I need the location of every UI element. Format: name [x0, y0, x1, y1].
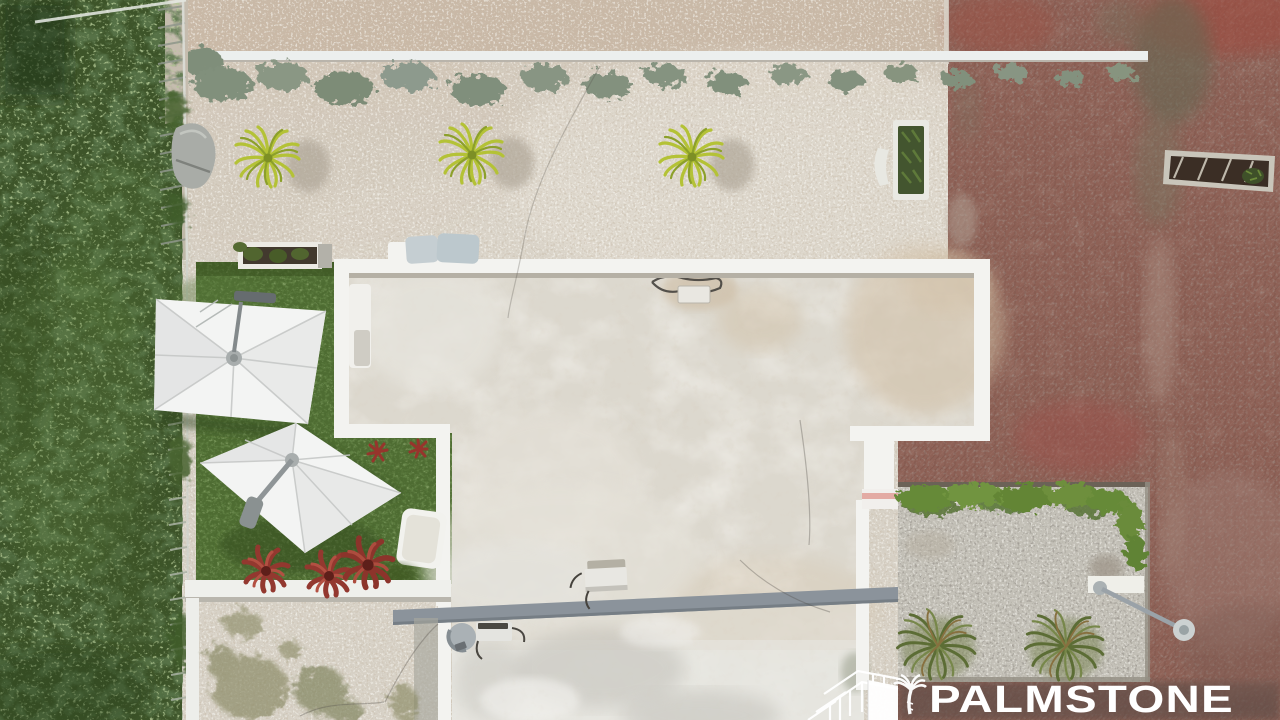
svg-text:PALMSTONE: PALMSTONE	[929, 679, 1234, 720]
